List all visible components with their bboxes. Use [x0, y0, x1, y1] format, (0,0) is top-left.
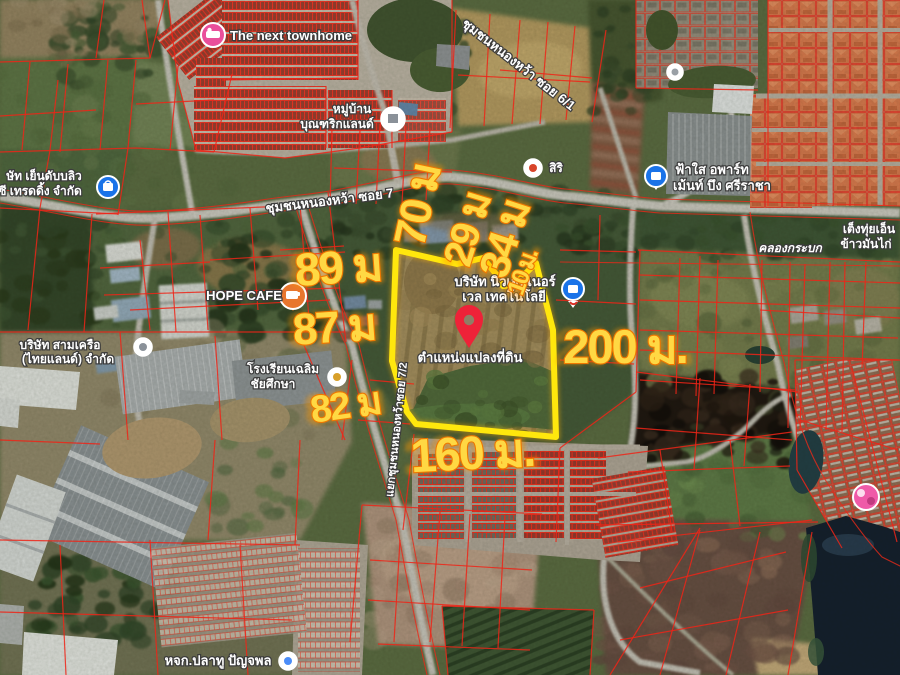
svg-text:เต็งทุ่ยเอ็น: เต็งทุ่ยเอ็น [843, 221, 896, 237]
svg-text:ฟ้าใส อพาร์ท: ฟ้าใส อพาร์ท [675, 161, 749, 177]
svg-text:The next townhome: The next townhome [230, 28, 352, 43]
svg-text:หจก.ปลาทู ปัญจพล: หจก.ปลาทู ปัญจพล [165, 653, 272, 669]
svg-text:200 ม.: 200 ม. [563, 320, 687, 373]
svg-text:89 ม: 89 ม [293, 238, 383, 296]
svg-text:หมู่บ้าน: หมู่บ้าน [333, 102, 372, 117]
svg-text:HOPE CAFE: HOPE CAFE [206, 288, 282, 303]
svg-text:คลองกระบก: คลองกระบก [758, 241, 822, 255]
svg-text:ซี เทรดดิ้ง จำกัด: ซี เทรดดิ้ง จำกัด [0, 181, 82, 198]
svg-text:บุณฑริกแลนด์: บุณฑริกแลนด์ [300, 117, 374, 132]
svg-text:87 ม: 87 ม [291, 300, 376, 355]
svg-text:ชัยศึกษา: ชัยศึกษา [251, 377, 296, 391]
svg-text:สิริ: สิริ [549, 161, 563, 175]
svg-text:ษัท เย็นดับบลิว: ษัท เย็นดับบลิว [5, 168, 82, 183]
svg-text:บริษัท สามเครือ: บริษัท สามเครือ [20, 338, 101, 352]
svg-text:ข้าวมันไก่: ข้าวมันไก่ [840, 236, 891, 251]
svg-text:160 ม.: 160 ม. [409, 423, 535, 482]
svg-text:ตำแหน่งแปลงที่ดิน: ตำแหน่งแปลงที่ดิน [418, 348, 523, 365]
svg-text:(ไทยแลนด์) จำกัด: (ไทยแลนด์) จำกัด [22, 351, 114, 366]
svg-text:โรงเรียนเฉลิม: โรงเรียนเฉลิม [246, 361, 319, 376]
svg-text:เม้นท์ บึง ศรีราชา: เม้นท์ บึง ศรีราชา [673, 178, 771, 193]
